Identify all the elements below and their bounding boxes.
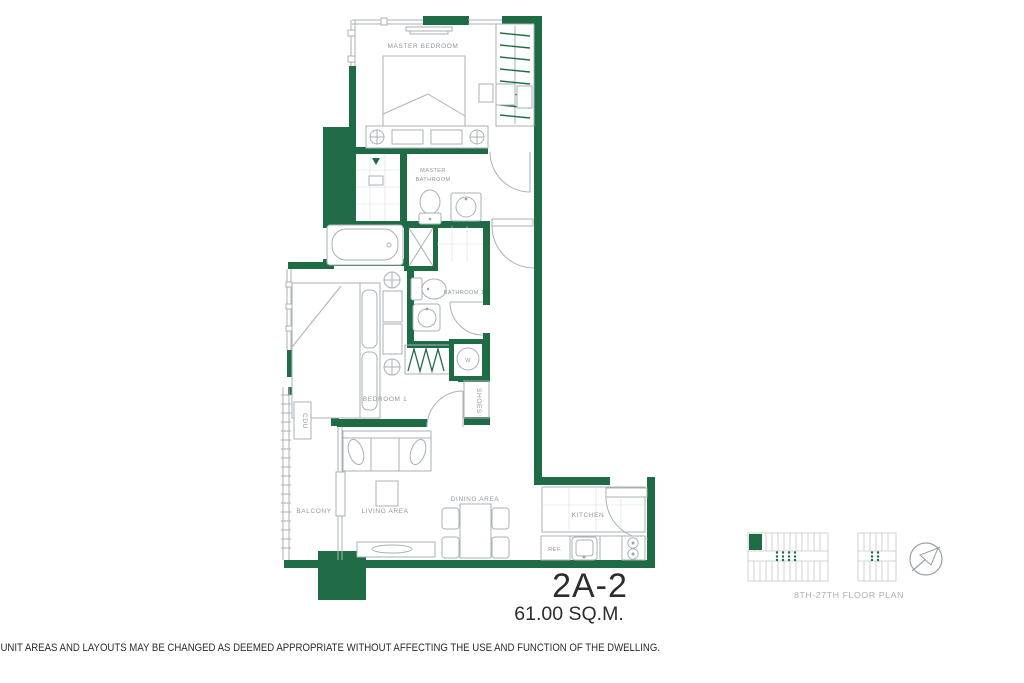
dining-table	[460, 504, 491, 558]
coffee-table	[376, 481, 398, 506]
stove	[622, 536, 645, 560]
shoes-label: SHOES	[475, 388, 482, 414]
shower-head-icon	[372, 158, 380, 165]
unit-location-marker	[749, 534, 762, 550]
nightstands	[383, 272, 402, 375]
master-toilet	[419, 190, 441, 224]
master-bathroom-label-1: MASTER	[420, 168, 446, 174]
toilet	[411, 278, 446, 300]
kitchen-label: KITCHEN	[572, 512, 605, 519]
corridor-door	[492, 219, 534, 268]
bedroom1-label: BEDROOM 1	[363, 396, 407, 403]
utility-closets: W SHOES	[405, 339, 489, 418]
key-building-a	[748, 533, 828, 581]
basin	[413, 304, 440, 331]
key-plan-caption: 8TH-27TH FLOOR PLAN	[794, 591, 904, 600]
dining-area-label: DINING AREA	[451, 496, 500, 503]
kitchen-sink	[572, 537, 597, 560]
bathroom1-door	[450, 302, 483, 335]
bed-bench	[366, 126, 488, 148]
master-bed	[383, 56, 465, 126]
master-bath-door	[490, 152, 530, 192]
dining-set	[442, 504, 509, 558]
key-plan: 8TH-27TH FLOOR PLAN	[748, 533, 942, 600]
stool	[479, 84, 493, 102]
key-building-b	[858, 533, 896, 581]
curtain	[406, 27, 452, 31]
bedroom1-door	[427, 391, 463, 427]
living-area-label: LIVING AREA	[361, 508, 408, 515]
floorplan-canvas: W SHOES CDU	[0, 0, 1024, 683]
master-bathroom-label-2: BATHROOM	[415, 177, 450, 183]
cdu-label: CDU	[301, 413, 308, 429]
hangers-icon	[408, 349, 444, 371]
master-basin	[451, 193, 481, 221]
balcony-label: BALCONY	[296, 508, 331, 515]
kitchen-fixtures: REF.	[541, 487, 648, 560]
unit-area: 61.00 SQ.M.	[514, 603, 623, 625]
refrigerator: REF.	[541, 536, 570, 560]
washer-label: W	[465, 358, 471, 364]
master-bedroom-label: MASTER BEDROOM	[388, 43, 459, 50]
north-arrow-icon	[910, 543, 942, 575]
wardrobe	[496, 24, 534, 126]
living-furniture	[343, 431, 435, 557]
bathtub	[327, 225, 403, 265]
unit-name: 2A-2	[552, 567, 628, 605]
sofa	[343, 431, 431, 471]
floorplan-page: W SHOES CDU	[0, 0, 1024, 683]
remark-text: REMARK: UNIT AREAS AND LAYOUTS MAY BE CH…	[0, 642, 660, 654]
tv-console	[357, 542, 435, 557]
entrance-door	[606, 488, 648, 539]
washing-machine: W	[449, 339, 487, 381]
ref-label: REF.	[548, 547, 562, 553]
condensing-unit: CDU	[294, 402, 311, 439]
shoes-closet: SHOES	[464, 381, 489, 418]
service-shaft	[404, 223, 438, 271]
bathroom1-label: BATHROOM 1	[444, 290, 485, 296]
